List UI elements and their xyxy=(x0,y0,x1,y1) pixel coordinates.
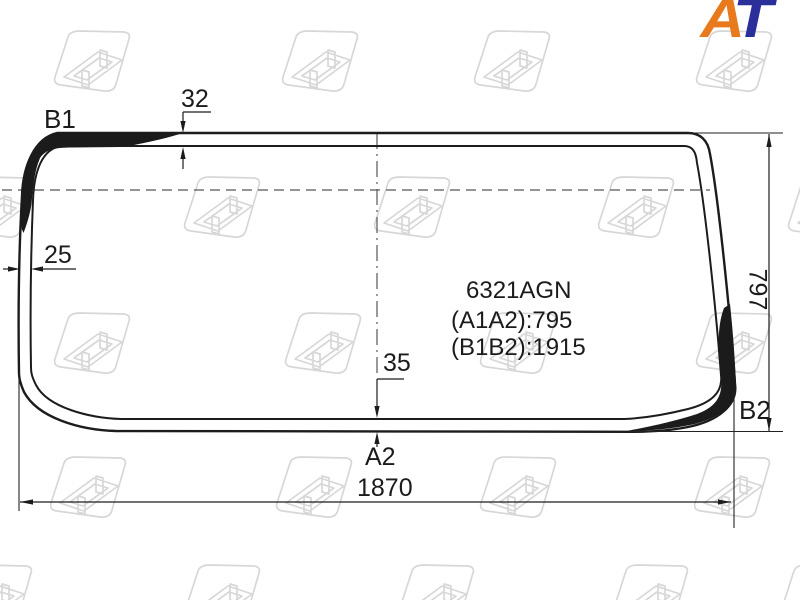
watermark-logo xyxy=(695,457,770,517)
watermark-logo xyxy=(789,177,800,237)
dimension-25-label: 25 xyxy=(44,243,72,268)
part-number: 6321AGN xyxy=(466,279,571,303)
watermark-logo xyxy=(286,313,361,373)
watermark-logo xyxy=(375,177,450,237)
watermark-logo xyxy=(277,457,352,517)
dimension-35-label: 35 xyxy=(383,351,411,376)
dimension-35-marks xyxy=(374,379,404,447)
watermark-logo xyxy=(283,31,358,91)
watermark-logo xyxy=(781,565,800,600)
watermark-logo xyxy=(185,565,260,600)
glass-inner-edge xyxy=(31,146,722,419)
dimension-32-label: 32 xyxy=(181,87,209,112)
dimension-1870-label: 1870 xyxy=(357,476,413,501)
watermark-logo xyxy=(55,31,130,91)
measurement-a1a2: (A1A2):795 xyxy=(451,309,572,333)
windshield-diagram: B1 32 25 35 A2 1870 797 B2 6321AGN (A1A2… xyxy=(0,0,800,600)
dimension-32-marks xyxy=(180,112,211,169)
point-label-b2: B2 xyxy=(739,397,771,423)
watermark-logo xyxy=(475,31,550,91)
ceramic-band-top-left xyxy=(21,133,183,233)
watermark-logo xyxy=(613,565,688,600)
watermark-logo xyxy=(481,457,556,517)
watermark-logo xyxy=(599,177,674,237)
watermark-logo xyxy=(55,313,130,373)
watermark-logo xyxy=(0,565,31,600)
diagram-canvas xyxy=(0,0,800,600)
watermark-logo xyxy=(185,177,260,237)
measurement-b1b2: (B1B2):1915 xyxy=(451,336,586,360)
point-label-b1: B1 xyxy=(44,106,76,132)
watermark-logo xyxy=(399,565,474,600)
watermark-pattern xyxy=(0,31,800,600)
dimension-797-label: 797 xyxy=(745,263,770,317)
watermark-logo xyxy=(51,457,126,517)
point-label-a2: A2 xyxy=(365,445,396,470)
